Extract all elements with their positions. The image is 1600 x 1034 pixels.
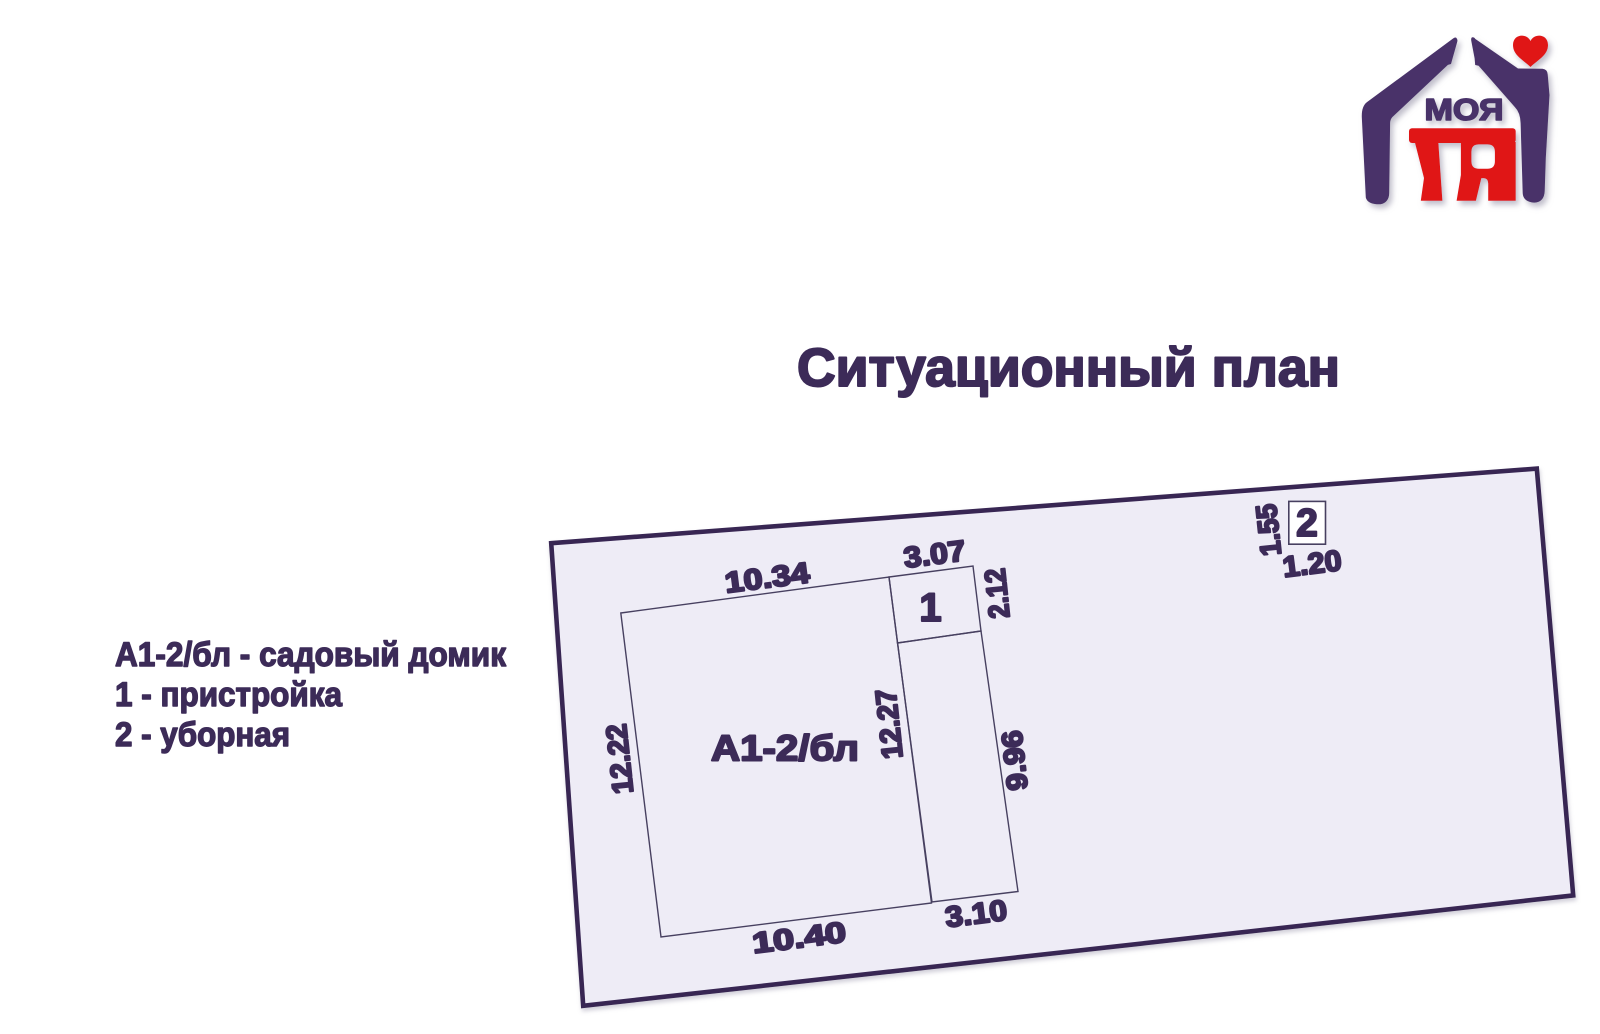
svg-text:9.96: 9.96 <box>996 729 1034 792</box>
svg-text:МОЯ: МОЯ <box>1425 92 1504 127</box>
svg-text:2 - уборная: 2 - уборная <box>115 716 290 754</box>
svg-text:А1-2/бл - садовый домик: А1-2/бл - садовый домик <box>115 636 507 674</box>
svg-text:1.55: 1.55 <box>1251 502 1288 557</box>
svg-text:А1-2/бл: А1-2/бл <box>711 728 859 769</box>
svg-text:2.12: 2.12 <box>979 567 1016 620</box>
svg-text:1: 1 <box>919 586 941 630</box>
svg-text:1 - пристройка: 1 - пристройка <box>115 676 343 714</box>
svg-text:2: 2 <box>1296 502 1318 545</box>
svg-text:Ситуационный план: Ситуационный план <box>797 338 1340 398</box>
